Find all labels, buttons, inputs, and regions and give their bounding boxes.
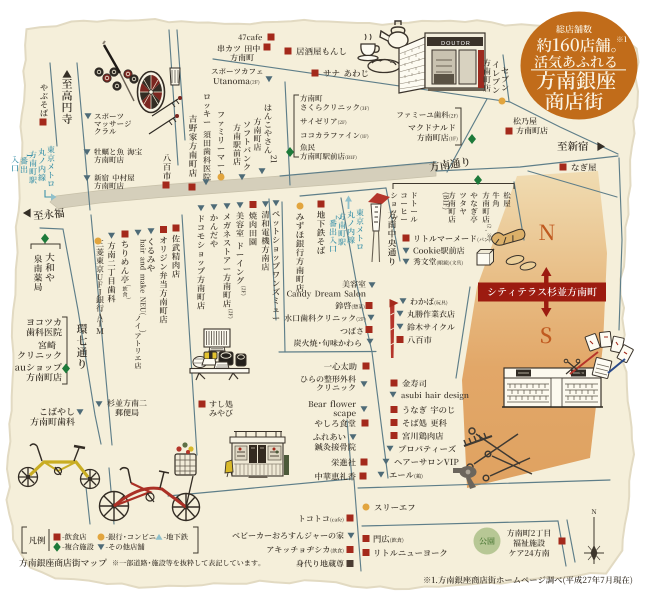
svg-text:DOUTOR: DOUTOR <box>441 41 471 47</box>
